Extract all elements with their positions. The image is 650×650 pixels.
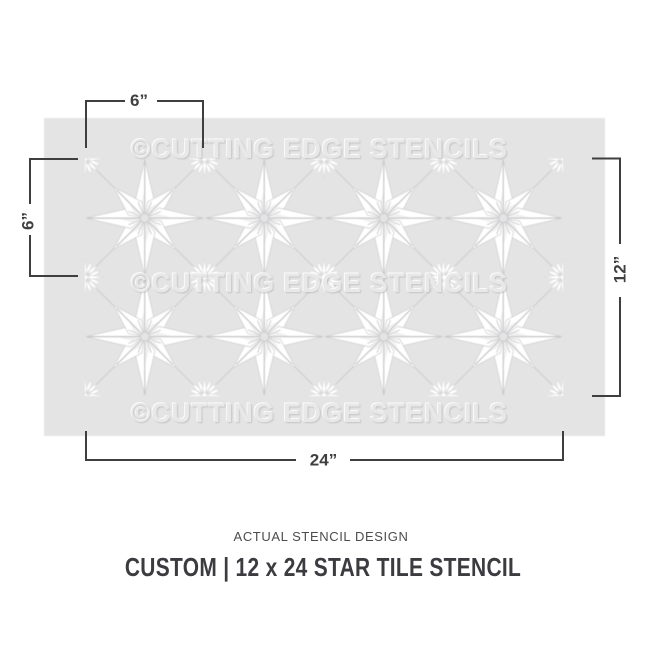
- svg-text:6”: 6”: [130, 91, 148, 110]
- svg-text:24”: 24”: [310, 451, 337, 470]
- svg-text:12”: 12”: [611, 256, 630, 283]
- svg-text:6”: 6”: [19, 212, 38, 230]
